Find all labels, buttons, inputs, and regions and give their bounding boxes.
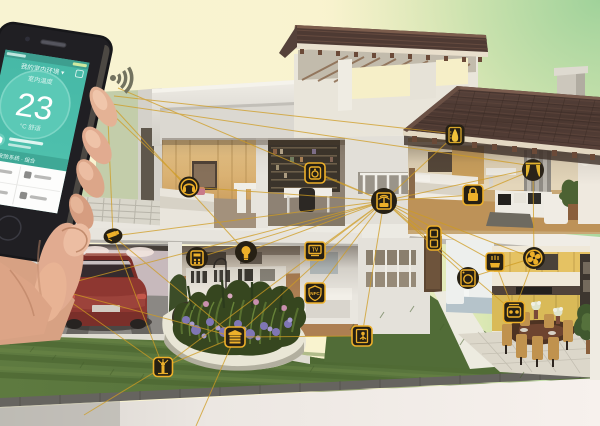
svg-text:23: 23 (12, 86, 56, 128)
svg-text:NFC: NFC (310, 291, 320, 296)
svg-text:TV: TV (312, 248, 319, 254)
